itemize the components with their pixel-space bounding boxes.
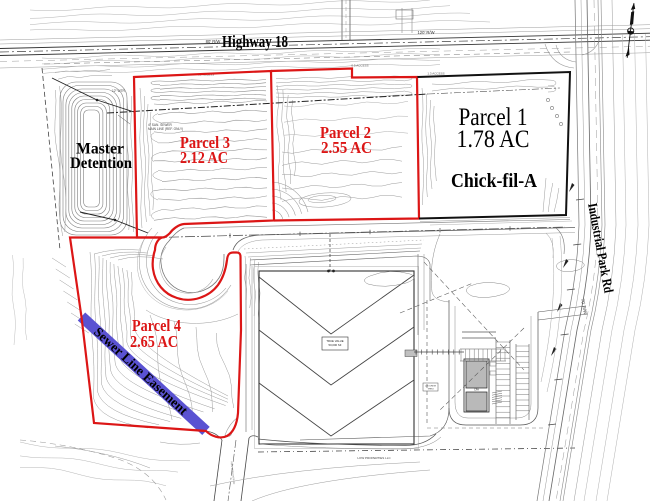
svg-text:Chick-fil-A: Chick-fil-A (451, 170, 537, 192)
svg-text:Highway 18: Highway 18 (222, 32, 288, 51)
svg-text:2.12 AC: 2.12 AC (180, 148, 228, 167)
svg-text:2.55 AC: 2.55 AC (321, 138, 372, 157)
svg-text:120’ R/W: 120’ R/W (417, 30, 434, 35)
svg-text:CFA: CFA (474, 388, 479, 392)
svg-text:LAV DRIVE: LAV DRIVE (425, 385, 437, 388)
svg-text:Detention: Detention (70, 155, 132, 172)
svg-text:1.78 AC: 1.78 AC (457, 126, 530, 153)
svg-text:1.3 ACCESS: 1.3 ACCESS (427, 72, 444, 76)
svg-text:THRU: THRU (427, 389, 433, 391)
svg-text:0.5 ACCESS: 0.5 ACCESS (351, 64, 368, 68)
svg-text:80’ R/W: 80’ R/W (206, 39, 221, 44)
svg-text:2.65 AC: 2.65 AC (130, 332, 178, 351)
svg-text:MAIN LINE (REF. ONLY): MAIN LINE (REF. ONLY) (148, 127, 183, 131)
svg-text:12″ WTR: 12″ WTR (112, 89, 126, 93)
svg-text:LOW PROPERTIES LLC: LOW PROPERTIES LLC (357, 456, 391, 460)
svg-text:50,000 SF: 50,000 SF (329, 343, 342, 347)
